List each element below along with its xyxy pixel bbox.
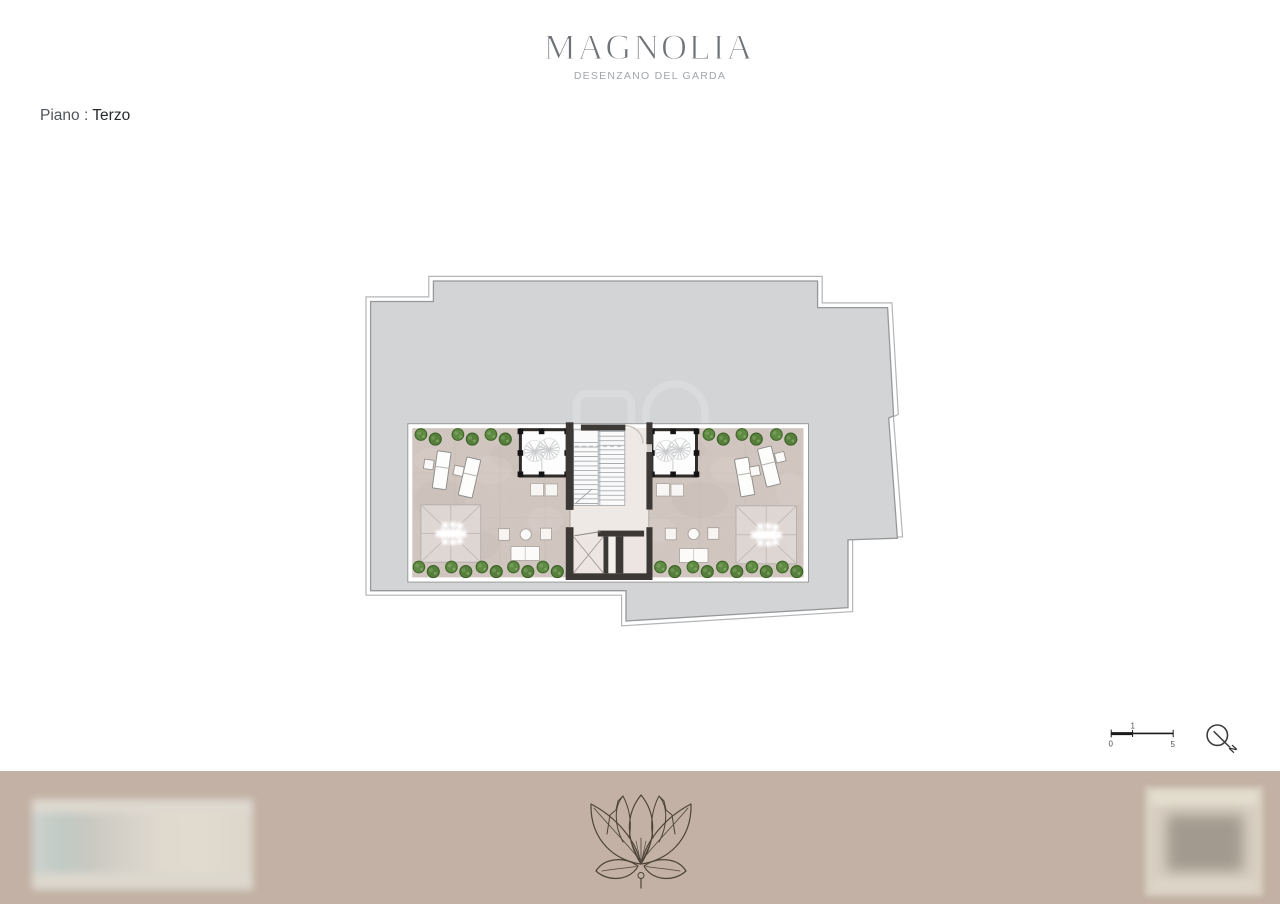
- svg-text:1: 1: [1131, 722, 1136, 731]
- svg-text:5: 5: [1171, 740, 1176, 749]
- svg-text:N: N: [1227, 743, 1240, 756]
- svg-text:0: 0: [1109, 740, 1114, 749]
